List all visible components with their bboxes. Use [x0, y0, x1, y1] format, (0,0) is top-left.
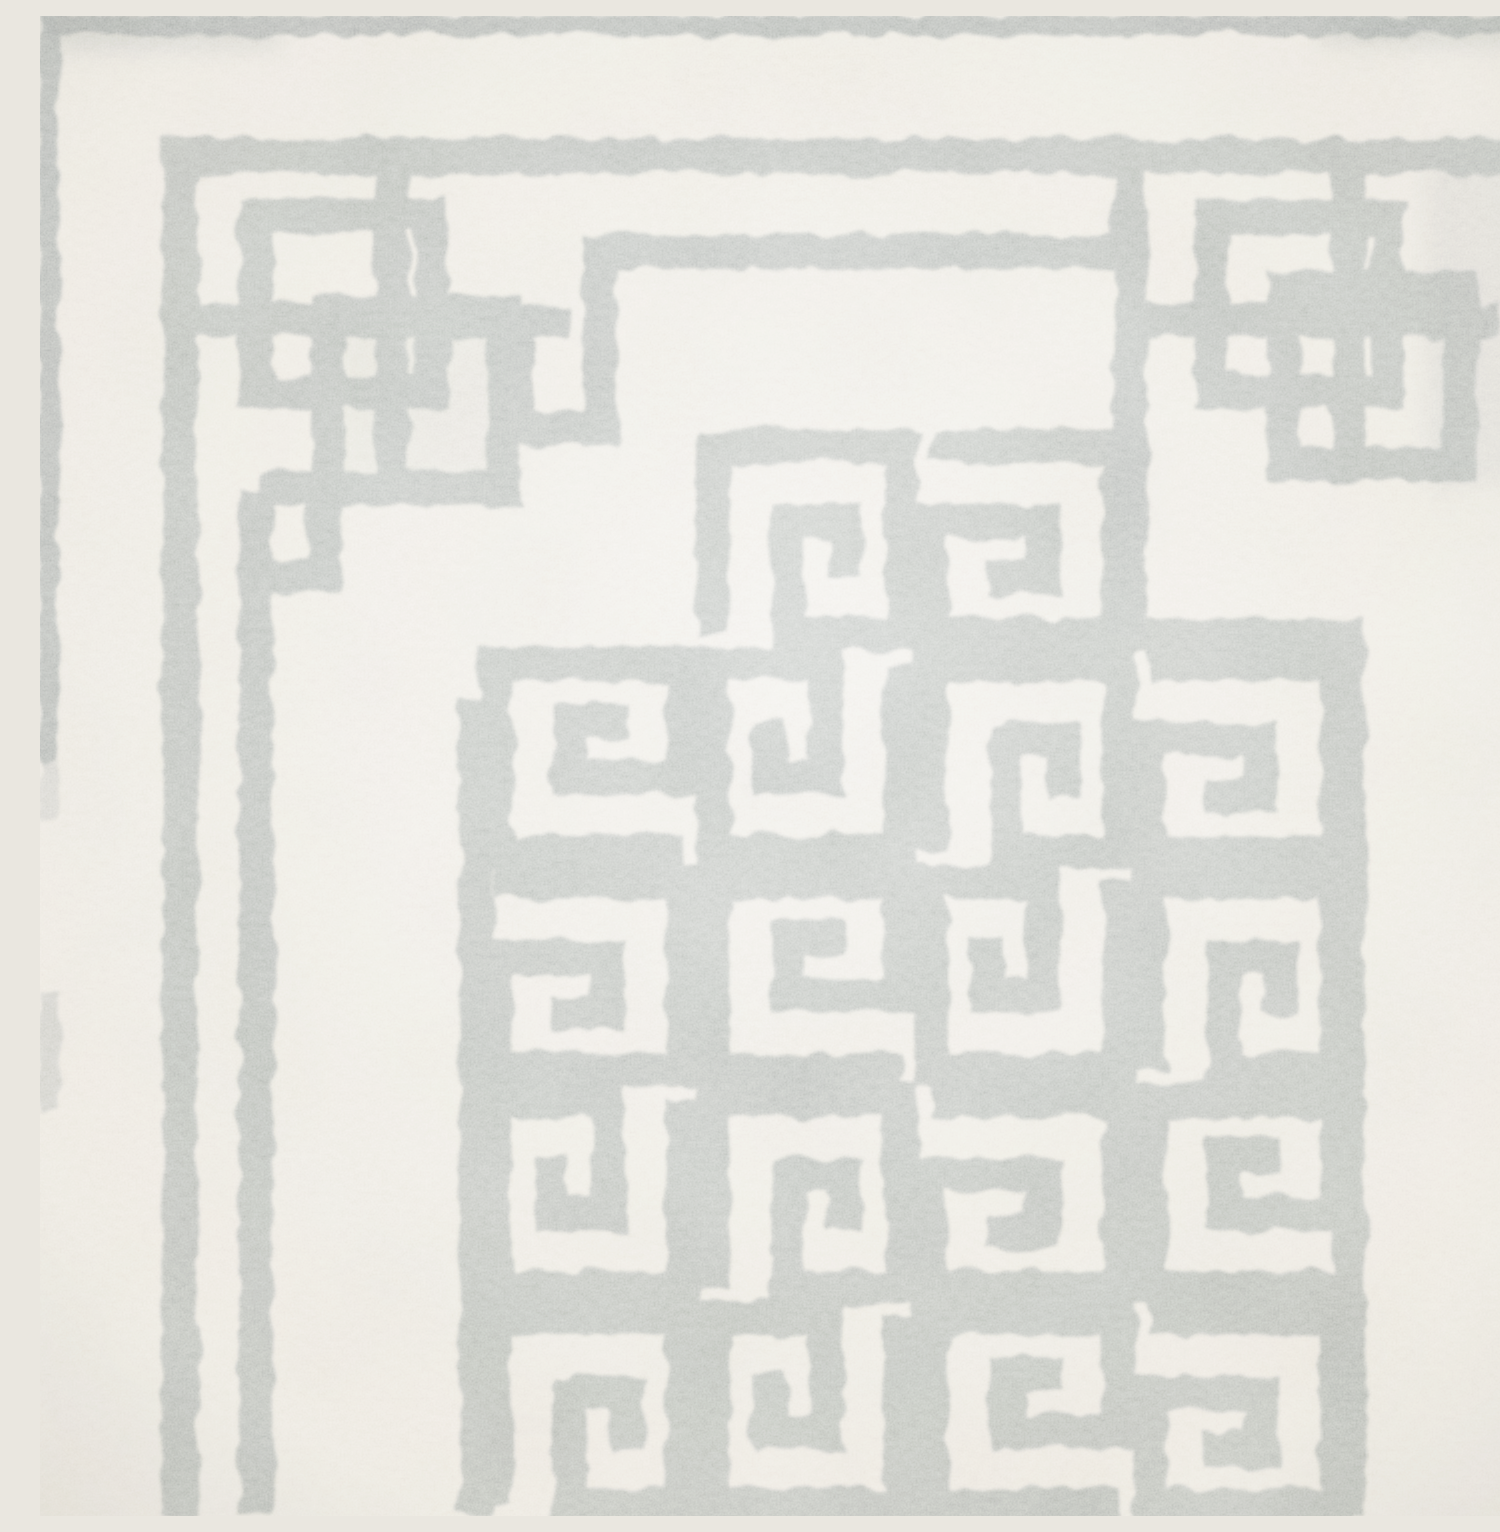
rug-canvas	[40, 16, 1500, 1516]
rug-photo	[40, 16, 1500, 1516]
lighting-overlay	[40, 16, 1500, 1516]
center-highlight	[40, 16, 1500, 1516]
